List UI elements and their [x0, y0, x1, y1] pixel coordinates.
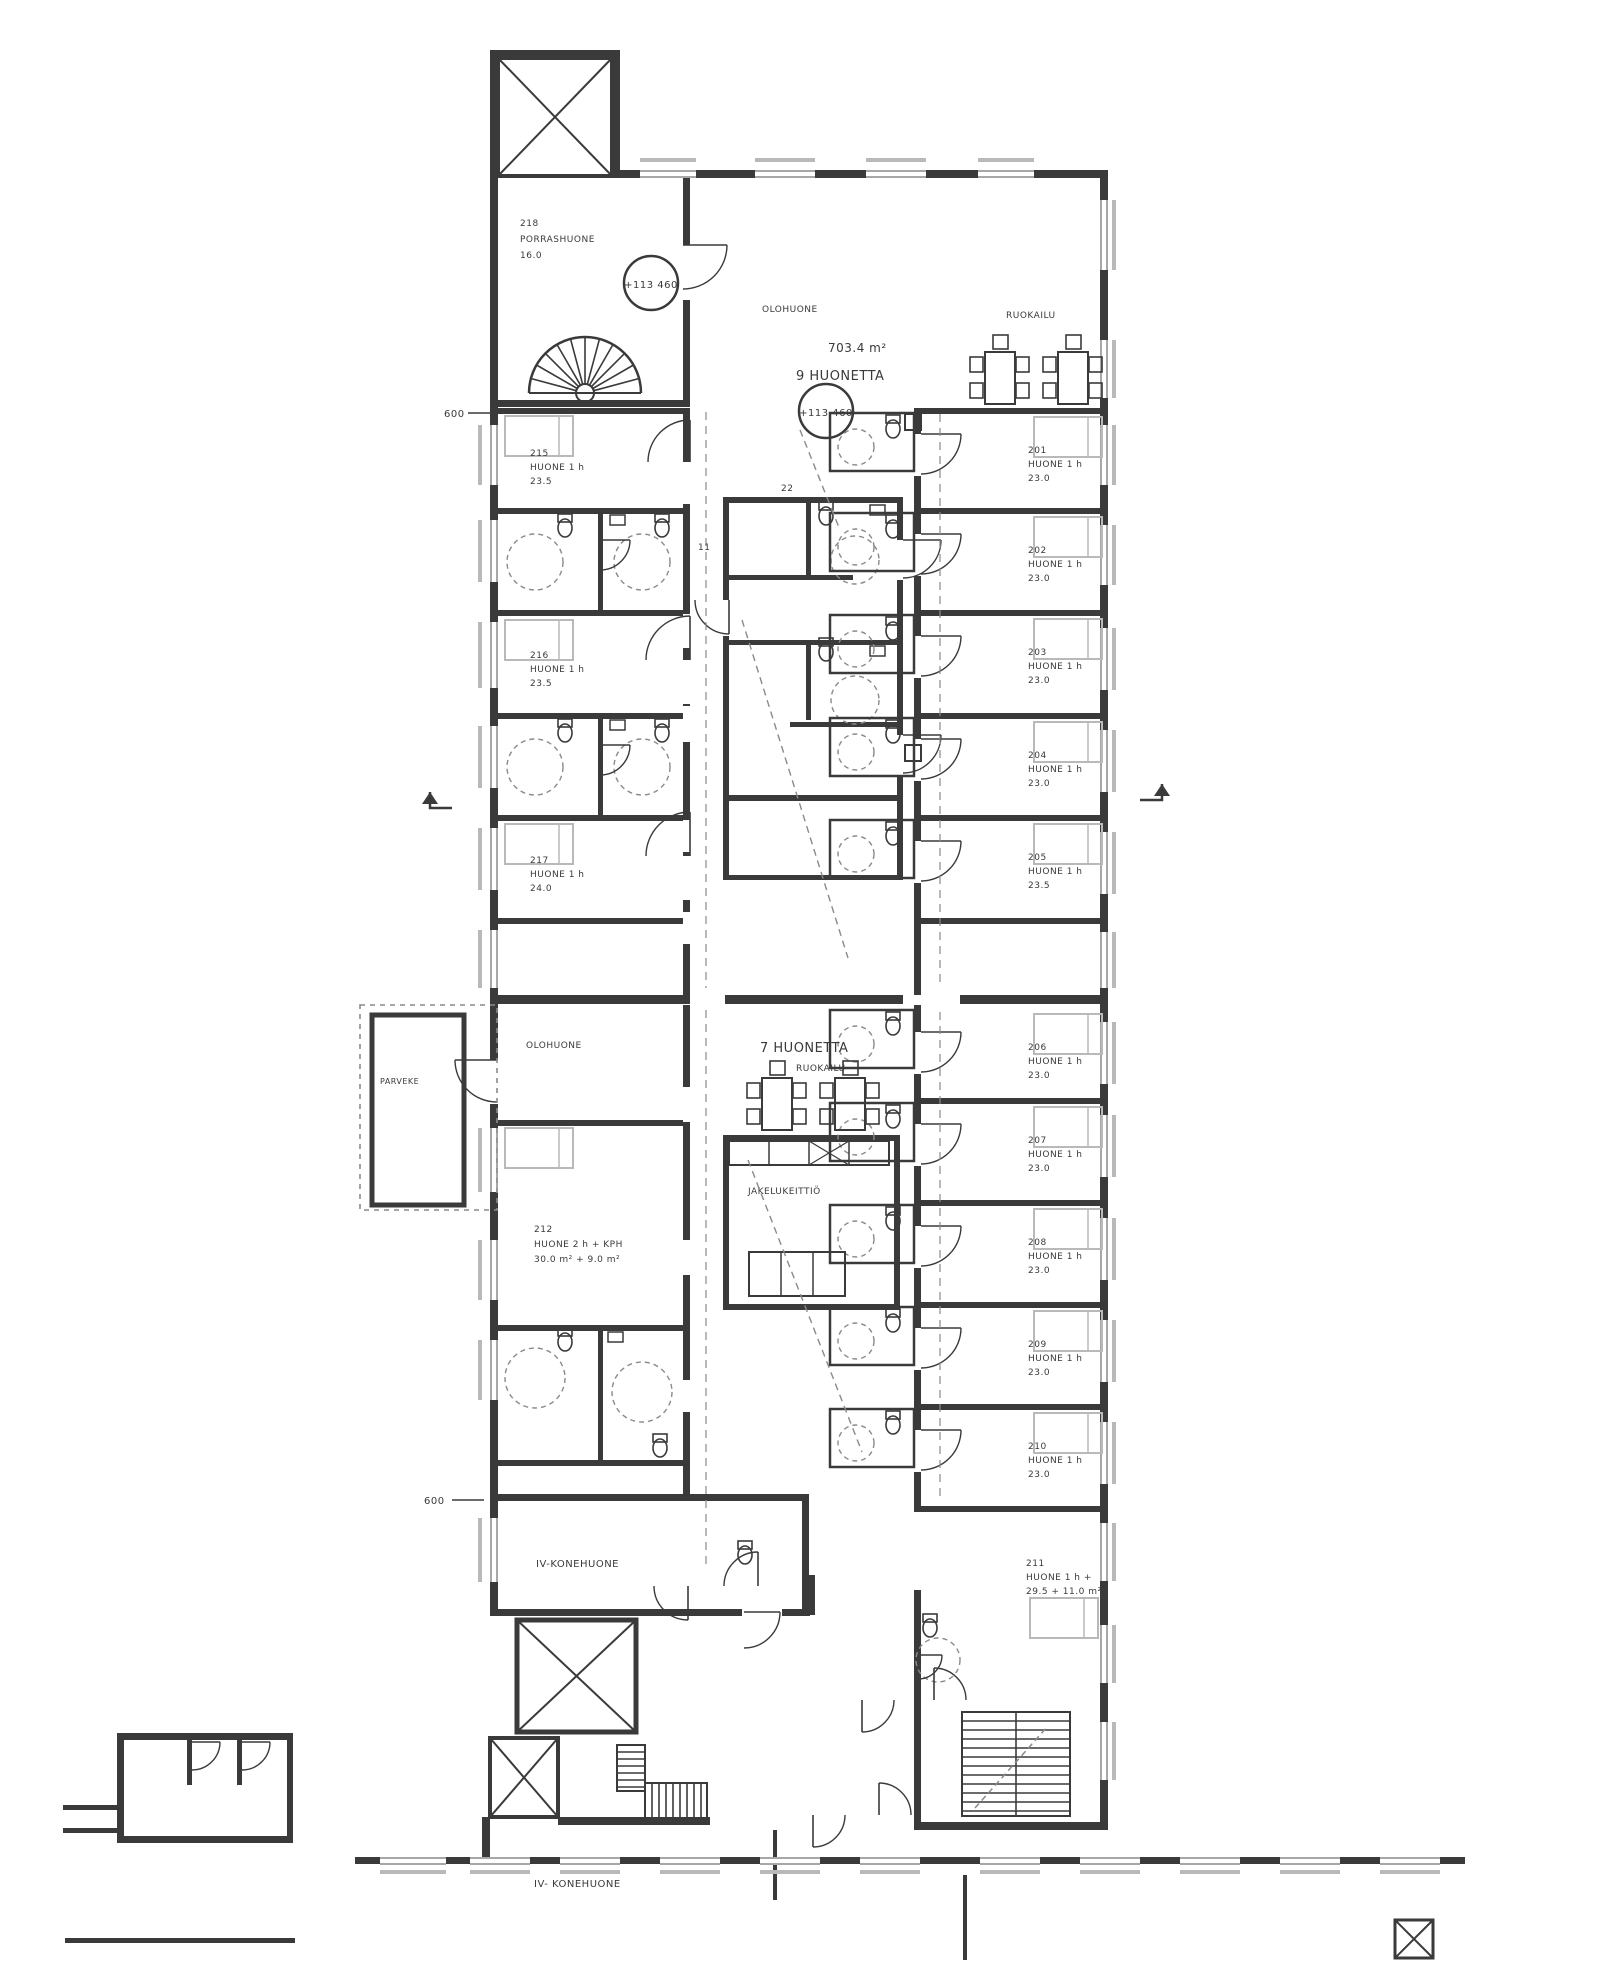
toilet: [558, 719, 572, 742]
door-swing: [744, 1612, 780, 1648]
toilet: [886, 1105, 900, 1128]
window-sill: [1080, 1870, 1140, 1874]
window-sill: [1112, 340, 1116, 398]
door-swing: [813, 1815, 845, 1847]
shaft-x-box: [490, 1738, 558, 1817]
shower-circle: [838, 1425, 874, 1461]
room-type: HUONE 1 h: [1028, 1150, 1083, 1160]
shower-circle: [838, 529, 874, 565]
window-sill: [1112, 628, 1116, 690]
shower-circle: [838, 429, 874, 465]
window-sill: [860, 1870, 920, 1874]
wall-segment: [683, 300, 690, 404]
sink: [610, 720, 625, 730]
shower-circle: [612, 1362, 672, 1422]
room-area: 23.0: [1028, 1164, 1050, 1174]
stair-flight: [645, 1783, 707, 1819]
room-area: 23.0: [1028, 676, 1050, 686]
label-family-type: HUONE 2 h + KPH: [534, 1240, 623, 1250]
bath-annex: [830, 1103, 914, 1161]
door-swing: [921, 434, 961, 474]
shower-circle: [614, 534, 670, 590]
wall-segment: [683, 1275, 690, 1380]
label-suite-num: 211: [1026, 1559, 1045, 1569]
room-area: 23.0: [1028, 1470, 1050, 1480]
wall-segment: [117, 1836, 293, 1843]
door-swing: [921, 739, 961, 779]
wall-segment: [806, 497, 811, 577]
door-swing: [903, 540, 941, 578]
window-sill: [660, 1870, 720, 1874]
shaft-x-box: [1395, 1920, 1433, 1958]
window-sill: [866, 158, 926, 162]
room-number: 210: [1028, 1442, 1047, 1452]
shower-circle: [831, 536, 879, 584]
wall-segment: [497, 1325, 683, 1331]
wall-segment: [497, 1120, 683, 1126]
wall-segment: [683, 502, 690, 614]
floor-plan-drawing: 703.4 m²9 HUONETTA7 HUONETTA+113 460+113…: [0, 0, 1600, 1980]
room-type: HUONE 1 h: [1028, 867, 1083, 877]
wall-segment: [117, 1733, 293, 1740]
wall-segment: [63, 1828, 117, 1833]
shower-circle: [507, 739, 563, 795]
room-number: 209: [1028, 1340, 1047, 1350]
wall-segment: [723, 497, 729, 801]
shower-circle: [838, 836, 874, 872]
label-suite-type: HUONE 1 h +: [1026, 1573, 1092, 1583]
door-swing: [921, 636, 961, 676]
door-opening: [897, 540, 903, 580]
label-balcony: PARVEKE: [380, 1077, 419, 1086]
label-machine-room-note: IV- KONEHUONE: [534, 1879, 621, 1890]
room-number: 215: [530, 449, 549, 459]
label-living-upper: OLOHUONE: [762, 305, 818, 315]
wall-segment: [808, 1575, 815, 1615]
room-area: 23.0: [1028, 779, 1050, 789]
label-living-lower: OLOHUONE: [526, 1041, 582, 1051]
room-area: 23.0: [1028, 1266, 1050, 1276]
shaft-x-box: [498, 58, 612, 176]
door-swing: [921, 1328, 961, 1368]
label-upper-rooms: 9 HUONETTA: [796, 369, 884, 384]
shower-circle: [614, 739, 670, 795]
wall-segment: [960, 995, 1108, 1004]
label-stair-hall-area: 16.0: [520, 251, 542, 261]
window-sill: [478, 828, 482, 890]
wall-segment: [914, 1404, 1107, 1410]
window-sill: [1112, 1320, 1116, 1382]
wall-segment: [723, 497, 903, 503]
label-elevation-upper: +113 460: [799, 408, 853, 419]
window-sill: [478, 930, 482, 988]
room-number: 207: [1028, 1136, 1047, 1146]
door-opening: [683, 660, 690, 704]
kitchen-counter: [729, 1141, 889, 1296]
toilet: [886, 1411, 900, 1434]
label-dim-left: 600: [444, 409, 465, 420]
bath-annex: [830, 1307, 914, 1365]
room-area: 23.0: [1028, 574, 1050, 584]
wall-segment: [287, 1733, 293, 1843]
room-number: 217: [530, 856, 549, 866]
dining-set: [1043, 335, 1102, 404]
bath-annex: [830, 1010, 914, 1068]
bath-annex: [830, 413, 914, 471]
wall-segment: [723, 795, 903, 801]
room-number: 216: [530, 651, 549, 661]
window-sill: [1112, 1722, 1116, 1780]
toilet: [886, 415, 900, 438]
wall-segment: [497, 508, 683, 514]
wall-segment: [914, 1302, 1107, 1308]
window-sill: [1112, 1625, 1116, 1683]
wall-segment: [802, 1494, 809, 1616]
wall-segment: [683, 408, 690, 466]
window-sill: [1180, 1870, 1240, 1874]
escape-path: [742, 620, 848, 958]
wall-segment: [117, 1733, 124, 1843]
window-sill: [560, 1870, 620, 1874]
wall-segment: [598, 713, 603, 815]
wall-segment: [723, 575, 853, 580]
label-dining-upper: RUOKAILU: [1006, 311, 1056, 321]
labels-layer: 703.4 m²9 HUONETTA7 HUONETTA+113 460+113…: [380, 219, 1102, 1890]
wall-segment: [963, 1875, 967, 1960]
label-kitchen: JAKELUKEITTIÖ: [747, 1186, 821, 1197]
toilet: [653, 1434, 667, 1457]
wall-segment: [482, 1817, 490, 1862]
door-opening: [683, 462, 690, 504]
room-number: 201: [1028, 446, 1047, 456]
room-type: HUONE 1 h: [1028, 1354, 1083, 1364]
wall-segment: [497, 918, 683, 924]
wall-segment: [497, 815, 683, 821]
window-sill: [478, 1240, 482, 1300]
bed: [1030, 1598, 1098, 1638]
door-opening: [723, 600, 729, 636]
bath-annex: [830, 1409, 914, 1467]
room-number: 203: [1028, 648, 1047, 658]
room-type: HUONE 1 h: [1028, 765, 1083, 775]
window-sill: [755, 158, 815, 162]
fixtures-layer: [490, 58, 1433, 1958]
spiral-stair: [529, 337, 641, 402]
label-machine-room: IV-KONEHUONE: [536, 1559, 619, 1570]
section-cut-marker: [1140, 784, 1170, 800]
wall-segment: [914, 610, 1107, 616]
toilet: [558, 514, 572, 537]
bed: [505, 1128, 573, 1168]
window-sill: [1112, 730, 1116, 792]
wall-segment: [598, 1325, 603, 1460]
wall-segment: [914, 713, 1107, 719]
toilet: [558, 1328, 572, 1351]
room-type: HUONE 1 h: [1028, 560, 1083, 570]
wall-segment: [914, 1506, 1107, 1512]
door-swing: [918, 1655, 942, 1679]
window-sill: [1112, 1022, 1116, 1084]
label-mark-11: 11: [698, 543, 710, 553]
wall-segment: [914, 1098, 1107, 1104]
wall-segment: [683, 1412, 690, 1494]
door-swing: [242, 1742, 270, 1770]
door-swing: [921, 1124, 961, 1164]
label-elevation-hall: +113 460: [624, 280, 678, 291]
wall-segment: [914, 1590, 921, 1828]
window-sill: [478, 1128, 482, 1192]
wall-segment: [683, 1005, 690, 1087]
sink: [870, 646, 885, 656]
window-sill: [1112, 1523, 1116, 1581]
room-area: 23.5: [1028, 881, 1050, 891]
label-mark-22: 22: [781, 484, 793, 494]
bath-annex: [830, 1205, 914, 1263]
label-lower-rooms: 7 HUONETTA: [760, 1041, 848, 1056]
door-swing: [921, 1032, 961, 1072]
room-number: 205: [1028, 853, 1047, 863]
window-sill: [1112, 1218, 1116, 1280]
window-sill: [478, 726, 482, 788]
window-sill: [380, 1870, 446, 1874]
wall-segment: [497, 610, 683, 616]
window-sill: [1112, 425, 1116, 485]
toilet: [923, 1614, 937, 1637]
shower-circle: [505, 1348, 565, 1408]
room-type: HUONE 1 h: [1028, 1057, 1083, 1067]
door-swing: [192, 1742, 220, 1770]
room-type: HUONE 1 h: [1028, 1252, 1083, 1262]
door-opening: [683, 245, 690, 293]
window-sill: [1112, 1422, 1116, 1484]
wall-segment: [63, 1805, 117, 1810]
wall-segment: [725, 995, 903, 1004]
window-sill: [1112, 200, 1116, 270]
shower-circle: [838, 734, 874, 770]
room-area: 23.5: [530, 679, 552, 689]
shower-circle: [838, 631, 874, 667]
room-type: HUONE 1 h: [1028, 662, 1083, 672]
room-area: 23.0: [1028, 1368, 1050, 1378]
balcony-outline: [360, 1005, 497, 1210]
wall-segment: [914, 918, 1107, 924]
window-sill: [1380, 1870, 1440, 1874]
window-sill: [640, 158, 696, 162]
room-area: 23.0: [1028, 474, 1050, 484]
wall-segment: [897, 801, 903, 880]
door-swing: [862, 1700, 894, 1732]
room-area: 23.0: [1028, 1071, 1050, 1081]
wall-segment: [723, 801, 729, 880]
window-sill: [478, 520, 482, 582]
room-type: HUONE 1 h: [530, 665, 585, 675]
wall-segment: [914, 1822, 1108, 1830]
door-swing: [879, 1783, 911, 1815]
wall-segment: [598, 508, 603, 610]
toilet: [655, 514, 669, 537]
label-dining-lower: RUOKAILU: [796, 1064, 846, 1074]
sink: [610, 515, 625, 525]
window-sill: [980, 1870, 1040, 1874]
wall-segment: [914, 408, 1107, 414]
wall-segment: [65, 1938, 295, 1943]
stairs-layer: [529, 337, 1070, 1819]
window-sill: [1280, 1870, 1340, 1874]
room-number: 208: [1028, 1238, 1047, 1248]
door-opening: [683, 856, 690, 900]
wall-segment: [914, 408, 921, 995]
window-sill: [760, 1870, 820, 1874]
room-type: HUONE 1 h: [530, 870, 585, 880]
wall-segment: [490, 1494, 808, 1501]
window-sill: [1112, 932, 1116, 988]
label-family-area: 30.0 m² + 9.0 m²: [534, 1255, 620, 1265]
shower-circle: [838, 1323, 874, 1359]
section-cut-marker: [422, 792, 452, 808]
window-sill: [478, 622, 482, 688]
wall-segment: [497, 1460, 683, 1466]
window-sill: [1112, 525, 1116, 585]
label-stair-hall-name: PORRASHUONE: [520, 235, 595, 245]
wall-segment: [237, 1733, 242, 1785]
window-sill: [478, 1518, 482, 1582]
room-number: 206: [1028, 1043, 1047, 1053]
label-stair-hall-num: 218: [520, 219, 539, 229]
door-swing: [921, 1430, 961, 1470]
shower-circle: [507, 534, 563, 590]
window-sill: [978, 158, 1034, 162]
door-swing: [724, 1552, 758, 1586]
window-sill: [478, 1340, 482, 1400]
label-dim-lower: 600: [424, 1496, 445, 1507]
room-type: HUONE 1 h: [1028, 1456, 1083, 1466]
wall-segment: [683, 742, 690, 820]
window-sill: [478, 425, 482, 485]
door-swing: [921, 1226, 961, 1266]
dining-set: [970, 335, 1029, 404]
wall-segment: [806, 640, 811, 720]
wall-segment: [914, 508, 1107, 514]
wall-segment: [490, 995, 690, 1004]
door-swing: [921, 841, 961, 881]
room-type: HUONE 1 h: [1028, 460, 1083, 470]
label-family-num: 212: [534, 1225, 553, 1235]
floor-plan-sheet: 703.4 m²9 HUONETTA7 HUONETTA+113 460+113…: [0, 0, 1600, 1980]
room-number: 202: [1028, 546, 1047, 556]
furniture-layer: [505, 335, 1102, 1638]
wall-segment: [187, 1733, 192, 1785]
room-area: 24.0: [530, 884, 552, 894]
window-sill: [1112, 1115, 1116, 1177]
toilet: [886, 1309, 900, 1332]
wall-segment: [914, 1200, 1107, 1206]
toilet: [886, 1012, 900, 1035]
walls-layer: [63, 50, 1465, 1960]
toilet: [655, 719, 669, 742]
wall-segment: [497, 713, 683, 719]
label-total-area: 703.4 m²: [828, 341, 887, 355]
room-type: HUONE 1 h: [530, 463, 585, 473]
room-area: 23.5: [530, 477, 552, 487]
wall-segment: [683, 1122, 690, 1240]
sink: [608, 1332, 623, 1342]
wall-segment: [683, 944, 690, 995]
wall-segment: [497, 408, 683, 414]
balcony-slab: [372, 1015, 464, 1205]
label-suite-area: 29.5 + 11.0 m²: [1026, 1587, 1102, 1597]
stair-flight: [617, 1745, 645, 1791]
room-number: 204: [1028, 751, 1047, 761]
window-sill: [470, 1870, 530, 1874]
door-swing: [934, 1668, 966, 1700]
shaft-x-box: [517, 1620, 636, 1732]
wall-segment: [914, 815, 1107, 821]
window-sill: [1112, 832, 1116, 894]
